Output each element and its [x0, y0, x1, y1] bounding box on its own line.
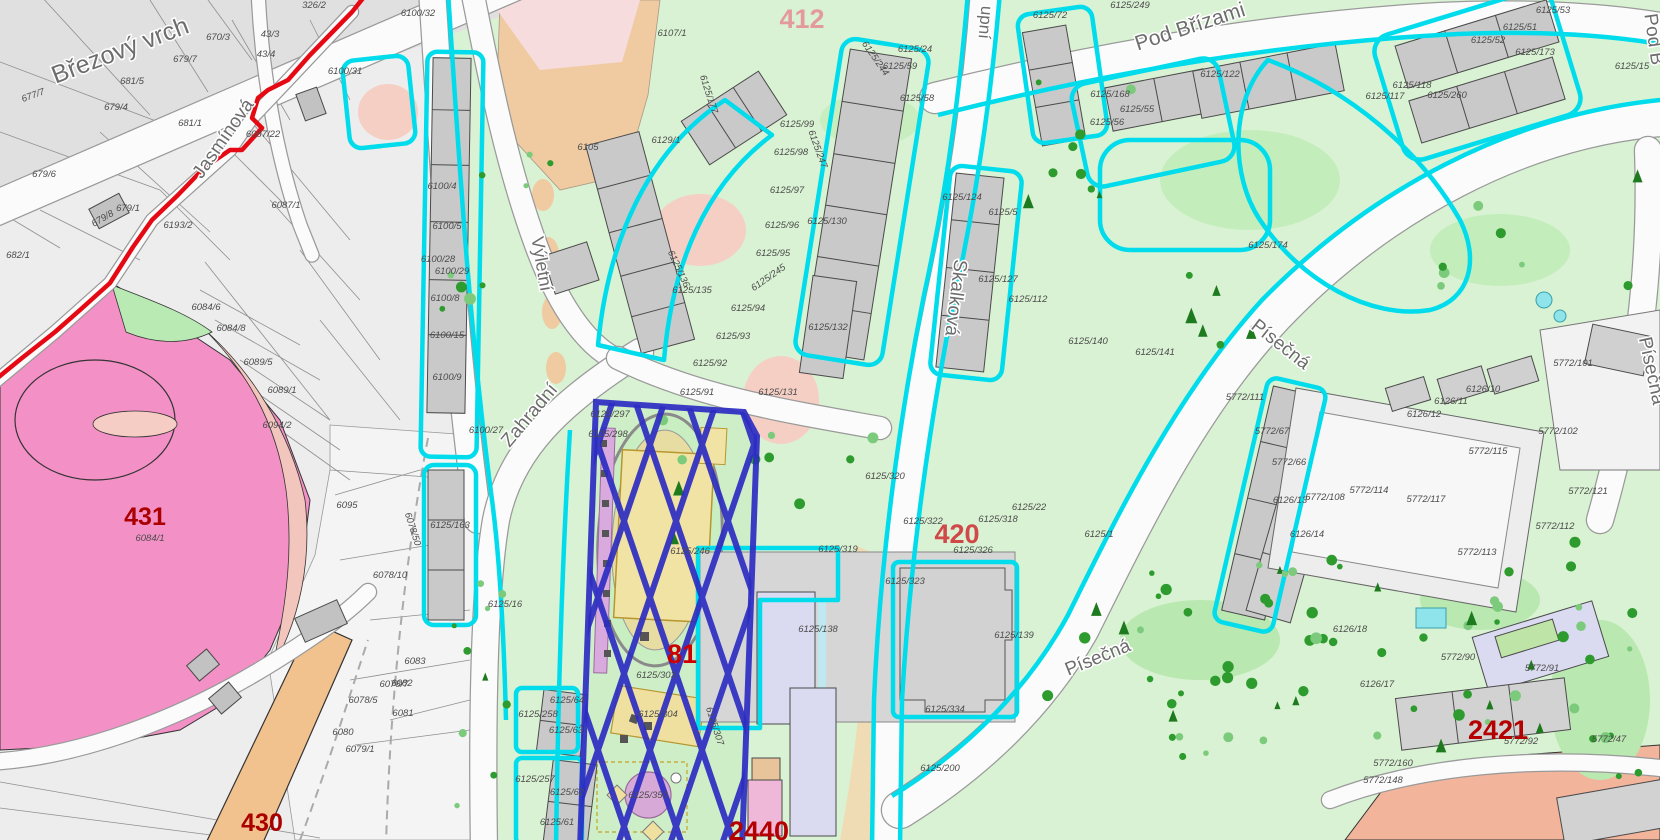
- parcel-label: 6125/130: [807, 216, 847, 227]
- parcel-label: 5772/67: [1255, 426, 1290, 437]
- parcel-label: 6125/257: [515, 774, 555, 785]
- parcel-label: 5772/101: [1553, 358, 1593, 369]
- parcel-label: 6125/131: [758, 387, 798, 398]
- parcel-label: 6125/72: [1033, 10, 1068, 21]
- parcel-label: 6125/318: [978, 514, 1018, 525]
- parcel-label: 6125/139: [994, 630, 1034, 641]
- parcel-label: 679/6: [32, 169, 56, 180]
- parcel-label: 6125/64: [550, 695, 584, 706]
- parcel-label: 6125/53: [1536, 5, 1571, 16]
- parcel-label: 6084/6: [191, 302, 221, 313]
- parcel-label: 5772/112: [1536, 521, 1576, 532]
- parcel-label: 5772/90: [1441, 652, 1476, 663]
- parcel-label: 5772/111: [1226, 392, 1264, 403]
- parcel-label: 5772/117: [1407, 494, 1447, 505]
- area-number-label: 2421: [1468, 715, 1528, 745]
- area-number-label: 431: [124, 503, 166, 531]
- parcel-label: 6125/94: [731, 303, 765, 314]
- parcel-label: 679/4: [104, 102, 128, 113]
- parcel-label: 6125/122: [1200, 69, 1240, 80]
- parcel-label: 6126/17: [1360, 679, 1395, 690]
- parcel-label: 6125/96: [765, 220, 800, 231]
- parcel-label: 6100/28: [421, 254, 456, 265]
- parcel-label: 6078/10: [373, 570, 408, 581]
- map-canvas[interactable]: 677/7679/6679/1679/8682/1681/5679/7670/3…: [0, 0, 1660, 840]
- parcel-label: 6125/99: [780, 119, 815, 130]
- parcel-label: 5772/113: [1458, 547, 1498, 558]
- parcel-label: 5772/66: [1272, 457, 1307, 468]
- parcel-label: 5772/121: [1568, 486, 1608, 497]
- parcel-label: 6100/15: [430, 330, 465, 341]
- parcel-label: 6125/132: [808, 322, 848, 333]
- parcel-label: 6125/298: [588, 429, 628, 440]
- parcel-label: 43/4: [257, 49, 276, 60]
- parcel-label: 6100/4: [427, 181, 456, 192]
- parcel-label: 6125/135: [672, 285, 712, 296]
- parcel-label: 6125/56: [1090, 117, 1125, 128]
- parcel-label: 6125/24: [898, 44, 932, 55]
- parcel-label: 6129/1: [651, 135, 680, 146]
- parcel-label: 5772/108: [1305, 492, 1345, 503]
- parcel-label: 6089/5: [243, 357, 273, 368]
- street-label: upní: [975, 5, 997, 40]
- parcel-label: 6125/52: [1471, 35, 1506, 46]
- parcel-label: 6107/1: [657, 28, 686, 39]
- parcel-label: 6100/9: [432, 372, 462, 383]
- parcel-label: 5772/47: [1592, 734, 1627, 745]
- parcel-label: 6125/98: [774, 147, 809, 158]
- parcel-label: 6125/91: [680, 387, 714, 398]
- parcel-label: 6126/14: [1290, 529, 1324, 540]
- parcel-label: 6125/297: [590, 409, 630, 420]
- area-number-label: 420: [934, 519, 979, 549]
- parcel-label: 6125/62: [550, 787, 585, 798]
- parcel-label: 6089/1: [267, 385, 296, 396]
- parcel-label: 6105: [577, 142, 599, 153]
- parcel-label: 6125/59: [883, 61, 918, 72]
- parcel-label: 6087/1: [271, 200, 300, 211]
- parcel-label: 6081: [392, 708, 413, 719]
- parcel-label: 681/5: [120, 76, 144, 87]
- area-number-label: 412: [779, 4, 824, 34]
- parcel-label: 6100/32: [401, 8, 436, 19]
- parcel-label: 6125/246: [670, 546, 710, 557]
- area-number-label: 81: [667, 639, 697, 669]
- parcel-label: 6125/118: [1393, 80, 1433, 91]
- parcel-label: 679/1: [116, 203, 140, 214]
- parcel-label: 326/2: [302, 0, 326, 11]
- parcel-label: 5772/160: [1373, 758, 1413, 769]
- parcel-label: 6125/168: [1090, 89, 1130, 100]
- parcel-label: 5772/102: [1538, 426, 1578, 437]
- parcel-label: 6126/13: [1273, 495, 1308, 506]
- parcel-label: 6125/173: [1515, 47, 1555, 58]
- parcel-label: 5772/114: [1350, 485, 1389, 496]
- parcel-label: 6100/5: [432, 221, 462, 232]
- parcel-label: 6125/127: [978, 274, 1018, 285]
- parcel-label: 6083: [404, 656, 426, 667]
- parcel-label: 6080: [332, 727, 354, 738]
- parcel-label: 6125/303: [636, 670, 676, 681]
- parcel-label: 6125/304: [638, 709, 678, 720]
- parcel-label: 6125/124: [942, 192, 982, 203]
- parcel-label: 6125/55: [1120, 104, 1155, 115]
- parcel-label: 6126/11: [1434, 396, 1468, 407]
- parcel-label: 670/3: [206, 32, 230, 43]
- parcel-label: 6125/51: [1503, 22, 1537, 33]
- parcel-label: 43/3: [261, 29, 280, 40]
- parcel-label: 6125/63: [549, 725, 584, 736]
- area-number-label: 430: [241, 809, 283, 837]
- parcel-label: 6125/112: [1009, 294, 1049, 305]
- parcel-label: 6126/18: [1333, 624, 1368, 635]
- parcel-label: 682/1: [6, 250, 30, 261]
- parcel-label: 6082: [391, 678, 413, 689]
- parcel-label: 5772/91: [1525, 663, 1559, 674]
- parcel-label: 6100/8: [430, 293, 460, 304]
- parcel-label: 6125/334: [925, 704, 965, 715]
- parcel-label: 6125/163: [430, 520, 470, 531]
- parcel-label: 6100/29: [435, 266, 470, 277]
- parcel-label: 6087/22: [246, 129, 281, 140]
- parcel-label: 6125/249: [1110, 0, 1150, 11]
- parcel-label: 6125/58: [900, 93, 935, 104]
- parcel-label: 6125/319: [818, 544, 858, 555]
- parcel-label: 6125/140: [1068, 336, 1108, 347]
- parcel-label: 6125/95: [756, 248, 791, 259]
- parcel-label: 6125/258: [518, 709, 558, 720]
- parcel-label: 6084/1: [135, 533, 164, 544]
- parcel-label: 6125/16: [488, 599, 523, 610]
- parcel-label: 6125/141: [1135, 347, 1175, 358]
- parcel-label: 6079/1: [345, 744, 374, 755]
- parcel-label: 6125/323: [885, 576, 925, 587]
- parcel-label: 6125/97: [770, 185, 805, 196]
- parcel-label: 679/7: [173, 54, 197, 65]
- parcel-label: 6125/320: [865, 471, 905, 482]
- parcel-label: 6100/27: [469, 425, 504, 436]
- parcel-label: 6125/93: [716, 331, 751, 342]
- parcel-label: 6084/8: [216, 323, 246, 334]
- parcel-label: 6125/92: [693, 358, 728, 369]
- parcel-label: 6125/117: [1366, 91, 1406, 102]
- parcel-label: 6095: [336, 500, 358, 511]
- parcel-label: 6125/200: [920, 763, 960, 774]
- parcel-label: 6193/2: [163, 220, 193, 231]
- parcel-label: 6126/12: [1407, 409, 1442, 420]
- parcel-label: 6125/22: [1012, 502, 1047, 513]
- parcel-label: 6078/5: [348, 695, 378, 706]
- parcel-label: 6125/138: [798, 624, 838, 635]
- parcel-label: 6094/2: [262, 420, 292, 431]
- parcel-label: 6125/1: [1084, 529, 1113, 540]
- parcel-label: 6125/15: [1615, 61, 1650, 72]
- parcel-label: 6125/174: [1248, 240, 1288, 251]
- parcel-label: 6125/260: [1427, 90, 1467, 101]
- parcel-label: 5772/115: [1469, 446, 1509, 457]
- area-number-label: 2440: [729, 816, 789, 840]
- parcel-label: 5772/148: [1363, 775, 1403, 786]
- parcel-label: 6125/350: [628, 790, 668, 801]
- parcel-label: 6126/10: [1466, 384, 1501, 395]
- parcel-label: 681/1: [178, 118, 202, 129]
- parcel-label: 6100/31: [328, 66, 362, 77]
- parcel-label: 6125/5: [988, 207, 1018, 218]
- parcel-label: 6125/61: [540, 817, 574, 828]
